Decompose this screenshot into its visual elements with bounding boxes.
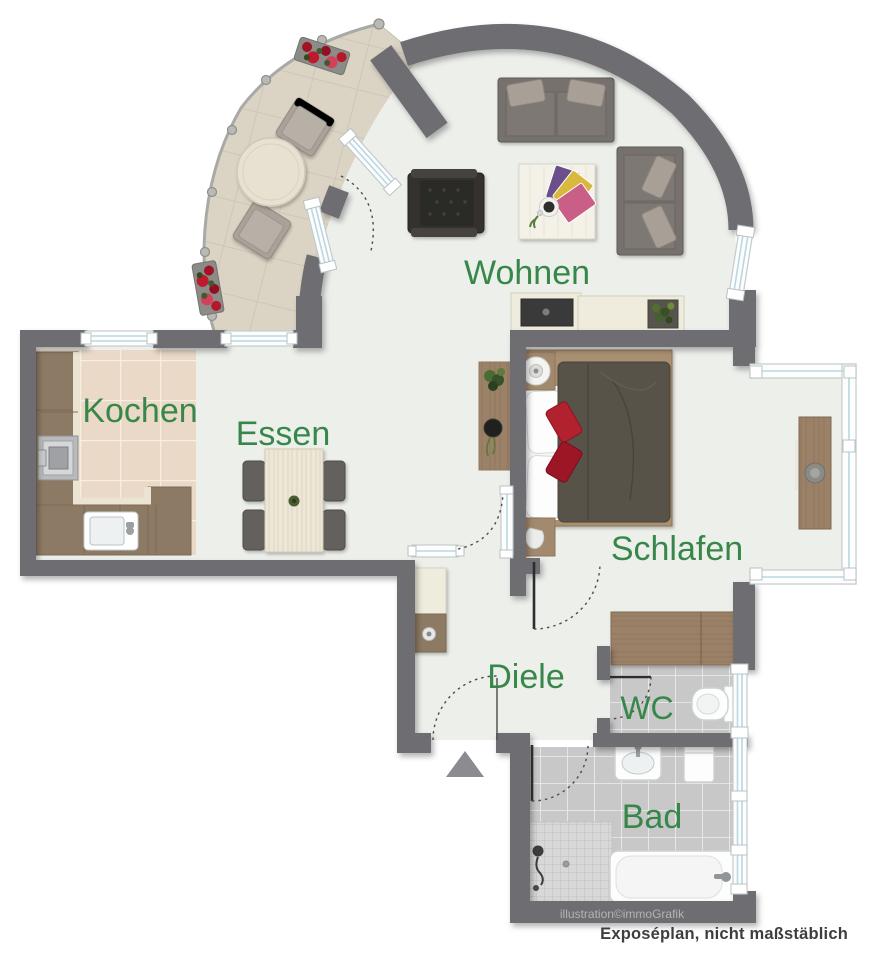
label-schlafen: Schlafen [611, 530, 743, 568]
sofa-top [498, 78, 614, 142]
bay-desk [795, 417, 831, 529]
watermark: illustration©immoGrafik [560, 907, 685, 921]
wardrobe [611, 612, 746, 665]
sofa-right [617, 147, 683, 255]
floor-plan: Wohnen Kochen Essen Schlafen Diele WC Ba… [0, 0, 871, 960]
sideboard-plant [648, 300, 678, 328]
bathtub [610, 851, 738, 903]
balcony-table [237, 138, 305, 206]
label-essen: Essen [236, 415, 331, 453]
label-wc: WC [620, 690, 673, 726]
hall-cabinet [412, 568, 446, 652]
sideboard [511, 293, 684, 331]
dining-set [243, 449, 345, 552]
wall-shelf [479, 362, 511, 470]
stove [38, 436, 78, 480]
dining-chair [323, 510, 345, 550]
entrance-arrow-icon [446, 751, 484, 777]
duvet [558, 362, 670, 522]
wc-bad-window [731, 664, 748, 894]
shelf-bowl [484, 419, 502, 437]
floor-plan-page: Wohnen Kochen Essen Schlafen Diele WC Ba… [0, 0, 871, 960]
kitchen-sink [84, 512, 138, 550]
dining-chair [243, 461, 265, 501]
label-bad: Bad [622, 798, 683, 836]
caption: Exposéplan, nicht maßstäblich [600, 925, 848, 943]
dining-chair [323, 461, 345, 501]
kitchen-window [81, 331, 157, 346]
essen-window [221, 331, 297, 346]
label-kochen: Kochen [82, 392, 197, 430]
shower-tiles [529, 822, 612, 903]
dining-chair [243, 510, 265, 550]
label-diele: Diele [487, 658, 564, 696]
armchair [408, 169, 484, 237]
coffee-table [519, 164, 596, 239]
label-wohnen: Wohnen [464, 254, 590, 292]
decor-shell [526, 528, 544, 548]
